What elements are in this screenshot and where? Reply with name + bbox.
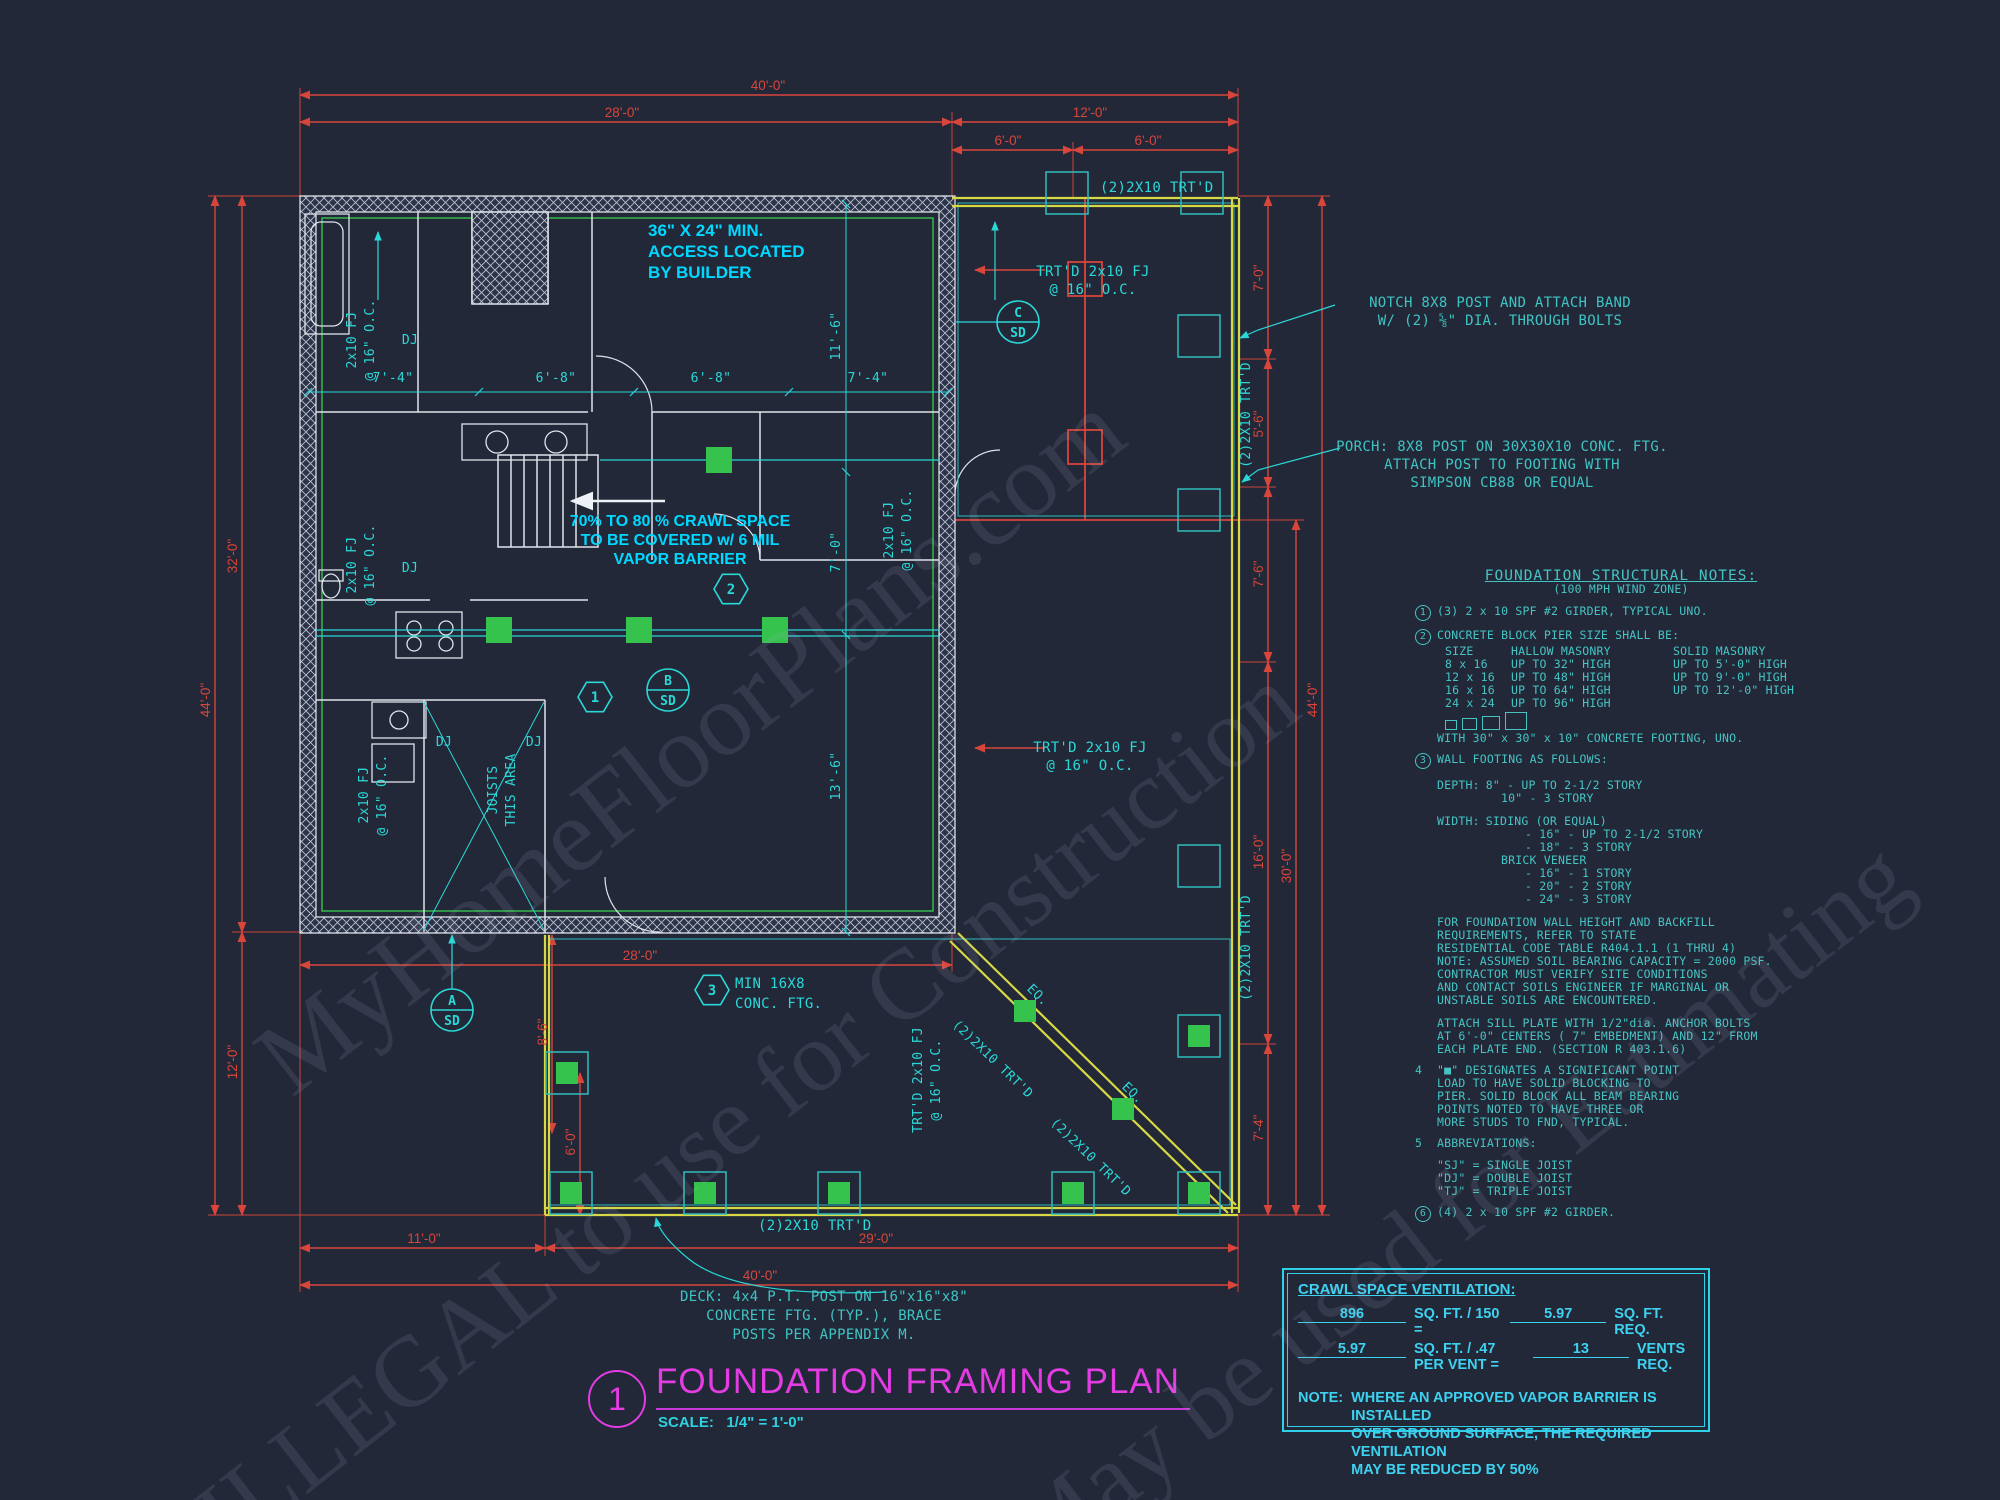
note-4-line5: MORE STUDS TO FND, TYPICAL.: [1437, 1116, 1827, 1129]
note-5-number: 5: [1415, 1137, 1431, 1150]
porch-note-line1: PORCH: 8X8 POST ON 30X30X10 CONC. FTG.: [1322, 438, 1682, 456]
vent-note-line1: WHERE AN APPROVED VAPOR BARRIER IS INSTA…: [1351, 1389, 1694, 1425]
vent-note-line3: MAY BE REDUCED BY 50%: [1351, 1461, 1694, 1479]
framing-labels: (2)2X10 TRT'D TRT'D 2x10 FJ @ 16" O.C. T…: [345, 180, 1254, 1234]
vent-row2-formula: SQ. FT. / .47 PER VENT =: [1414, 1341, 1525, 1373]
dim-right-3: 7'-6": [1251, 560, 1266, 587]
label-joist-4a: 2x10 FJ: [882, 502, 897, 559]
pier-table-r3c3: UP TO 12'-0" HIGH: [1673, 684, 1827, 697]
detail-number: 1: [608, 1381, 626, 1418]
vent-row-1: 896 SQ. FT. / 150 = 5.97 SQ. FT. REQ.: [1298, 1306, 1694, 1338]
vent-sqft-req-value: 5.97: [1510, 1306, 1606, 1323]
dim-porch-a: 6'-0": [995, 133, 1022, 148]
note-1-text: (3) 2 x 10 SPF #2 GIRDER, TYPICAL UNO.: [1437, 605, 1708, 621]
pier-table-r4c1: 24 x 24: [1445, 697, 1511, 710]
dim-int-v3: 13'-6": [829, 752, 844, 801]
label-deck-fj-v1: TRT'D 2x10 FJ: [911, 1027, 926, 1133]
dim-deck-left-b: 6'-0": [563, 1128, 578, 1155]
vent-row1-formula: SQ. FT. / 150 =: [1414, 1306, 1502, 1338]
label-porch-fj-2: @ 16" O.C.: [1049, 282, 1136, 298]
interior-partitions: [316, 212, 1000, 932]
note-item-5: 5 ABBREVIATIONS:: [1415, 1137, 1827, 1150]
porch-note: PORCH: 8X8 POST ON 30X30X10 CONC. FTG. A…: [1322, 438, 1682, 492]
dim-int-v2: 7'-0": [829, 532, 844, 573]
label-dj-1: DJ: [402, 333, 418, 348]
label-dj-2: DJ: [402, 561, 418, 576]
access-note-line2: ACCESS LOCATED: [648, 241, 804, 262]
sheet-scale: SCALE: 1/4" = 1'-0": [658, 1414, 804, 1431]
dim-right-4: 16'-0": [1251, 835, 1266, 870]
pier-table-r4c3: [1673, 697, 1827, 710]
sheet-title: FOUNDATION FRAMING PLAN: [656, 1362, 1190, 1410]
label-trtd-diag-1: (2)2X10 TRT'D: [949, 1017, 1035, 1101]
width-7: - 24" - 3 STORY: [1525, 893, 1827, 906]
vent-row2-unit: VENTS REQ.: [1637, 1341, 1694, 1373]
hex-1-number: 1: [591, 690, 599, 706]
vent-note-label: NOTE:: [1298, 1389, 1343, 1479]
note-5-text: ABBREVIATIONS:: [1437, 1137, 1537, 1150]
para2-line3: EACH PLATE END. (SECTION R 403.1.6): [1437, 1043, 1827, 1056]
crawl-space-note: 70% TO 80 % CRAWL SPACE TO BE COVERED w/…: [560, 512, 800, 569]
dim-left-total: 44'-0": [198, 683, 213, 718]
abbr-tj: "TJ" = TRIPLE JOIST: [1437, 1185, 1827, 1198]
abbreviations: "SJ" = SINGLE JOIST "DJ" = DOUBLE JOIST …: [1415, 1159, 1827, 1198]
dim-left-upper: 32'-0": [225, 539, 240, 574]
note-2-number: 2: [1415, 629, 1431, 645]
para1-line7: UNSTABLE SOILS ARE ENCOUNTERED.: [1437, 994, 1827, 1007]
vent-title: CRAWL SPACE VENTILATION:: [1298, 1281, 1694, 1298]
access-note-line1: 36" X 24" MIN.: [648, 220, 804, 241]
label-dj-3: DJ: [436, 735, 452, 750]
dim-int-4: 7'-4": [848, 371, 889, 386]
note-4-number: 4: [1415, 1064, 1431, 1077]
label-joist-3b: @ 16" O.C.: [375, 754, 390, 835]
notch-note-line1: NOTCH 8X8 POST AND ATTACH BAND: [1330, 294, 1670, 312]
vent-note-line2: OVER GROUND SURFACE, THE REQUIRED VENTIL…: [1351, 1425, 1694, 1461]
label-ftg-1: MIN 16X8: [735, 976, 805, 992]
note-item-1: 1 (3) 2 x 10 SPF #2 GIRDER, TYPICAL UNO.: [1415, 605, 1827, 621]
label-ftg-2: CONC. FTG.: [735, 996, 822, 1012]
deck-note-line2: CONCRETE FTG. (TYP.), BRACE: [664, 1307, 984, 1326]
access-note-line3: BY BUILDER: [648, 262, 804, 283]
callout-c-sd: SD: [1010, 326, 1026, 341]
notch-note: NOTCH 8X8 POST AND ATTACH BAND W/ (2) ⅝"…: [1330, 294, 1670, 330]
dim-top-left: 28'-0": [605, 105, 640, 120]
hex-2-number: 2: [727, 582, 735, 598]
dim-bottom-house: 28'-0": [623, 948, 658, 963]
label-trtd-top: (2)2X10 TRT'D: [1100, 180, 1213, 196]
deck-note: DECK: 4x4 P.T. POST ON 16"x16"x8" CONCRE…: [664, 1288, 984, 1345]
structural-notes-subtitle: (100 MPH WIND ZONE): [1415, 583, 1827, 596]
label-trtd-right-2: (2)2X10 TRT'D: [1239, 895, 1254, 1001]
foundation-framing-plan-sheet: 40'-0" 28'-0" 12'-0" 6'-0" 6'-0" 44'-0" …: [0, 0, 2000, 1500]
dim-right-1: 7'-0": [1251, 264, 1266, 291]
dim-bottom-left: 11'-0": [407, 1231, 441, 1246]
vent-row-2: 5.97 SQ. FT. / .47 PER VENT = 13 VENTS R…: [1298, 1341, 1694, 1373]
callout-c-letter: C: [1014, 306, 1022, 321]
dim-int-1: 7'-4": [373, 371, 414, 386]
label-joists-area-2: THIS AREA: [504, 753, 519, 826]
crawl-note-line3: VAPOR BARRIER: [560, 550, 800, 569]
dim-porch-b: 6'-0": [1135, 133, 1162, 148]
label-porch-fj-1: TRT'D 2x10 FJ: [1036, 264, 1149, 280]
hex-3-number: 3: [708, 983, 716, 999]
label-joist-4b: @ 16" O.C.: [900, 489, 915, 570]
label-deck-fj-v2: @ 16" O.C.: [929, 1039, 944, 1120]
vent-note: NOTE: WHERE AN APPROVED VAPOR BARRIER IS…: [1298, 1389, 1694, 1479]
deck-note-line1: DECK: 4x4 P.T. POST ON 16"x16"x8": [664, 1288, 984, 1307]
foundation-wall-paragraph: FOR FOUNDATION WALL HEIGHT AND BACKFILL …: [1415, 916, 1827, 1007]
dim-right-6: 30'-0": [1279, 849, 1294, 884]
pier-table-r4c2: UP TO 96" HIGH: [1511, 697, 1673, 710]
note-1-number: 1: [1415, 605, 1431, 621]
depth-label: DEPTH:: [1437, 779, 1480, 792]
access-note: 36" X 24" MIN. ACCESS LOCATED BY BUILDER: [648, 220, 804, 283]
dim-left-lower: 12'-0": [225, 1045, 240, 1080]
label-joist-3a: 2x10 FJ: [357, 767, 372, 824]
label-joist-1b: @ 16" O.C.: [363, 299, 378, 380]
dim-int-v1: 11'-6": [829, 312, 844, 361]
label-joist-2a: 2x10 FJ: [345, 537, 360, 594]
pier-size-icons: [1445, 712, 1827, 730]
detail-number-circle: 1: [588, 1370, 646, 1428]
note-item-6: 6 (4) 2 x 10 SPF #2 GIRDER.: [1415, 1206, 1827, 1222]
vent-req-value: 5.97: [1298, 1341, 1406, 1358]
note-item-3: 3 WALL FOOTING AS FOLLOWS:: [1415, 753, 1827, 769]
porch-note-line3: SIMPSON CB88 OR EQUAL: [1322, 474, 1682, 492]
label-trtd-bottom: (2)2X10 TRT'D: [758, 1218, 871, 1234]
callout-b-sd: SD: [660, 694, 676, 709]
label-joist-2b: @ 16" O.C.: [363, 524, 378, 605]
deck-note-line3: POSTS PER APPENDIX M.: [664, 1326, 984, 1345]
pier-table-footer: WITH 30" x 30" x 10" CONCRETE FOOTING, U…: [1437, 732, 1827, 745]
label-dj-4: DJ: [526, 735, 542, 750]
crawl-note-line1: 70% TO 80 % CRAWL SPACE: [560, 512, 800, 531]
dim-top-total: 40'-0": [751, 78, 786, 93]
deck-bands: [545, 198, 1239, 1215]
dim-top-right: 12'-0": [1073, 105, 1108, 120]
callout-a-letter: A: [448, 994, 456, 1009]
dim-int-3: 6'-8": [691, 371, 732, 386]
leader-lines: [452, 305, 1340, 1293]
crawl-note-line2: TO BE COVERED w/ 6 MIL: [560, 531, 800, 550]
vent-row1-unit: SQ. FT. REQ.: [1614, 1306, 1694, 1338]
label-joist-1a: 2x10 FJ: [345, 312, 360, 369]
label-trtd-diag-2: (2)2X10 TRT'D: [1047, 1115, 1133, 1199]
note-3-text: WALL FOOTING AS FOLLOWS:: [1437, 753, 1608, 769]
dim-int-2: 6'-8": [536, 371, 577, 386]
note-2-text: CONCRETE BLOCK PIER SIZE SHALL BE:: [1437, 629, 1679, 645]
label-trtd-right-1: (2)2X10 TRT'D: [1239, 362, 1254, 468]
width-label: WIDTH:: [1437, 815, 1480, 828]
label-joists-area-1: JOISTS: [486, 766, 501, 815]
crawl-space-ventilation-box: CRAWL SPACE VENTILATION: 896 SQ. FT. / 1…: [1282, 1268, 1710, 1432]
callout-a-sd: SD: [444, 1014, 460, 1029]
vent-sqft-value: 896: [1298, 1306, 1406, 1323]
depth-2: 10" - 3 STORY: [1501, 792, 1827, 805]
porch-note-line2: ATTACH POST TO FOOTING WITH: [1322, 456, 1682, 474]
dim-right-total: 44'-0": [1305, 683, 1320, 718]
dim-deck-left-a: 8'-6": [535, 1018, 550, 1045]
callout-b-letter: B: [664, 674, 672, 689]
sill-plate-paragraph: ATTACH SILL PLATE WITH 1/2"dia. ANCHOR B…: [1415, 1017, 1827, 1056]
notch-note-line2: W/ (2) ⅝" DIA. THROUGH BOLTS: [1330, 312, 1670, 330]
structural-notes: FOUNDATION STRUCTURAL NOTES: (100 MPH WI…: [1415, 570, 1827, 1222]
note-6-text: (4) 2 x 10 SPF #2 GIRDER.: [1437, 1206, 1615, 1222]
label-deck-fj-1: TRT'D 2x10 FJ: [1033, 740, 1146, 756]
dim-right-5: 7'-4": [1251, 1114, 1266, 1141]
note-item-2: 2 CONCRETE BLOCK PIER SIZE SHALL BE:: [1415, 629, 1827, 645]
dim-bottom-total: 40'-0": [743, 1268, 778, 1283]
label-deck-fj-2: @ 16" O.C.: [1046, 758, 1133, 774]
note-3-number: 3: [1415, 753, 1431, 769]
depth-row: DEPTH: 8" - UP TO 2-1/2 STORY: [1415, 779, 1827, 792]
note-6-number: 6: [1415, 1206, 1431, 1222]
pier-size-table: SIZE HALLOW MASONRY SOLID MASONRY 8 x 16…: [1445, 645, 1827, 710]
vent-count-value: 13: [1533, 1341, 1629, 1358]
vent-box-inner-border: CRAWL SPACE VENTILATION: 896 SQ. FT. / 1…: [1287, 1273, 1705, 1427]
